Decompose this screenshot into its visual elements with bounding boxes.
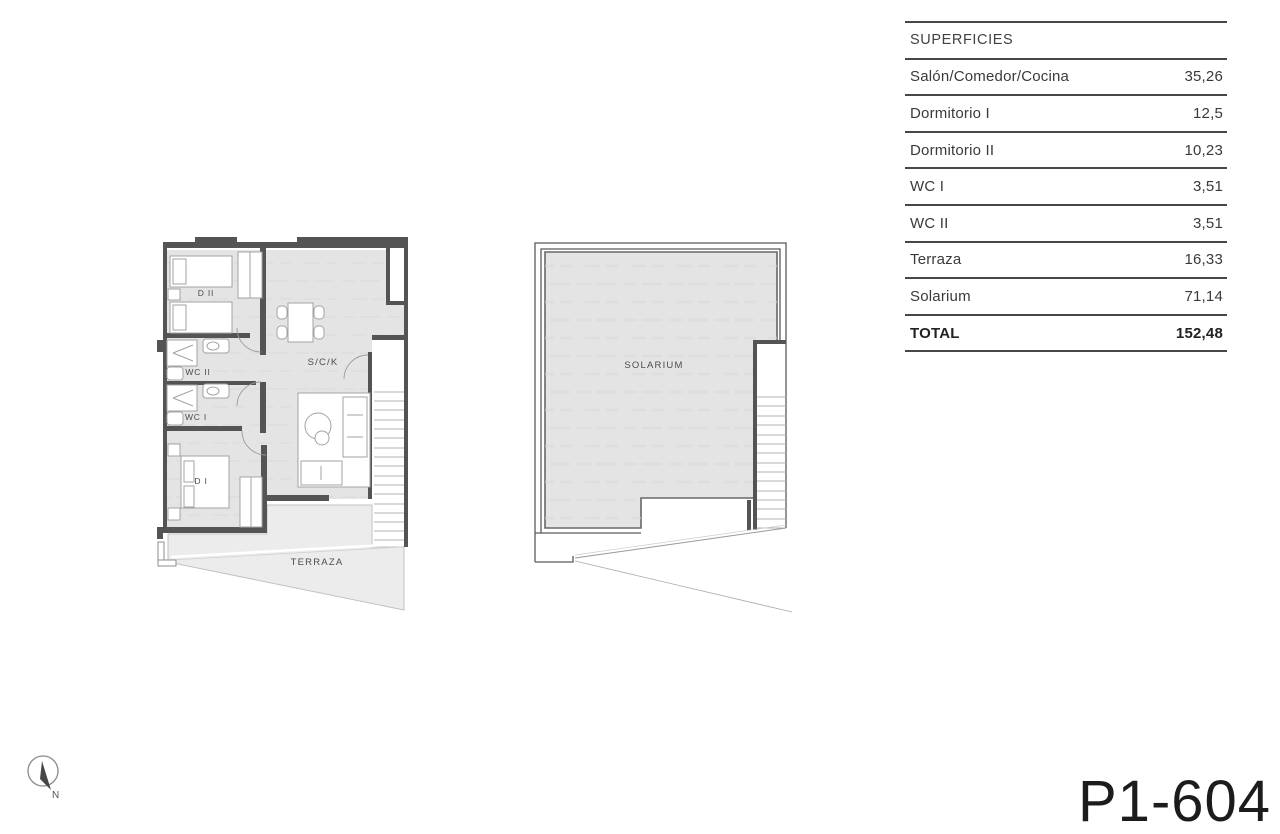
shower-wc2 [167, 340, 197, 366]
table-row: Solarium 71,14 [905, 279, 1227, 316]
kitchen-cabinet [343, 397, 367, 457]
row-value: 3,51 [1193, 215, 1223, 232]
row-label: WC II [910, 215, 949, 232]
room-label-d2: D II [198, 288, 214, 298]
floorplan-sheet: { "table": { "title": "SUPERFICIES", "ro… [0, 0, 1280, 820]
row-value: 3,51 [1193, 178, 1223, 195]
chair [314, 306, 324, 319]
room-label-wc2: WC II [185, 367, 210, 377]
table-row: WC I 3,51 [905, 169, 1227, 206]
row-label: Dormitorio I [910, 105, 990, 122]
nightstand [168, 444, 180, 456]
table-row: Salón/Comedor/Cocina 35,26 [905, 60, 1227, 97]
total-label: TOTAL [910, 325, 960, 342]
chair [277, 306, 287, 319]
room-label-sck: S/C/K [308, 357, 339, 368]
shower-wc1 [167, 385, 197, 411]
chair [314, 326, 324, 339]
row-value: 35,26 [1184, 68, 1223, 85]
nightstand [168, 508, 180, 520]
total-value: 152,48 [1176, 325, 1223, 342]
room-label-wc1: WC I [185, 412, 207, 422]
room-label-d1: D I [194, 476, 207, 486]
table-row: Dormitorio II 10,23 [905, 133, 1227, 170]
row-value: 16,33 [1184, 251, 1223, 268]
deck-edges [575, 525, 792, 612]
solarium-floor [545, 252, 777, 528]
toilet-wc2 [167, 367, 183, 380]
row-value: 12,5 [1193, 105, 1223, 122]
row-label: WC I [910, 178, 944, 195]
chair [277, 326, 287, 339]
dining-table [288, 303, 313, 342]
solarium-floorplan: SOLARIUM [528, 238, 796, 620]
table-row: Dormitorio I 12,5 [905, 96, 1227, 133]
room-label-terraza: TERRAZA [291, 557, 344, 568]
nightstand [168, 289, 180, 300]
north-arrow: N [14, 748, 74, 806]
surfaces-table: SUPERFICIES Salón/Comedor/Cocina 35,26 D… [905, 21, 1227, 352]
room-label-solarium: SOLARIUM [624, 360, 683, 371]
row-value: 71,14 [1184, 288, 1223, 305]
row-label: Salón/Comedor/Cocina [910, 68, 1069, 85]
table-title: SUPERFICIES [910, 32, 1013, 48]
table-row: WC II 3,51 [905, 206, 1227, 243]
row-label: Solarium [910, 288, 971, 305]
row-value: 10,23 [1184, 142, 1223, 159]
toilet-wc1 [167, 412, 183, 425]
table-row: Terraza 16,33 [905, 243, 1227, 280]
row-label: Terraza [910, 251, 961, 268]
apartment-floorplan: D II WC II WC I D I S/C/K TERRAZA [155, 236, 415, 626]
compass-n-label: N [52, 790, 59, 801]
table-row-total: TOTAL 152,48 [905, 316, 1227, 353]
drawing-number: P1-604 [1078, 772, 1271, 833]
row-label: Dormitorio II [910, 142, 994, 159]
stairs [374, 392, 404, 540]
surfaces-table-header: SUPERFICIES [905, 23, 1227, 60]
